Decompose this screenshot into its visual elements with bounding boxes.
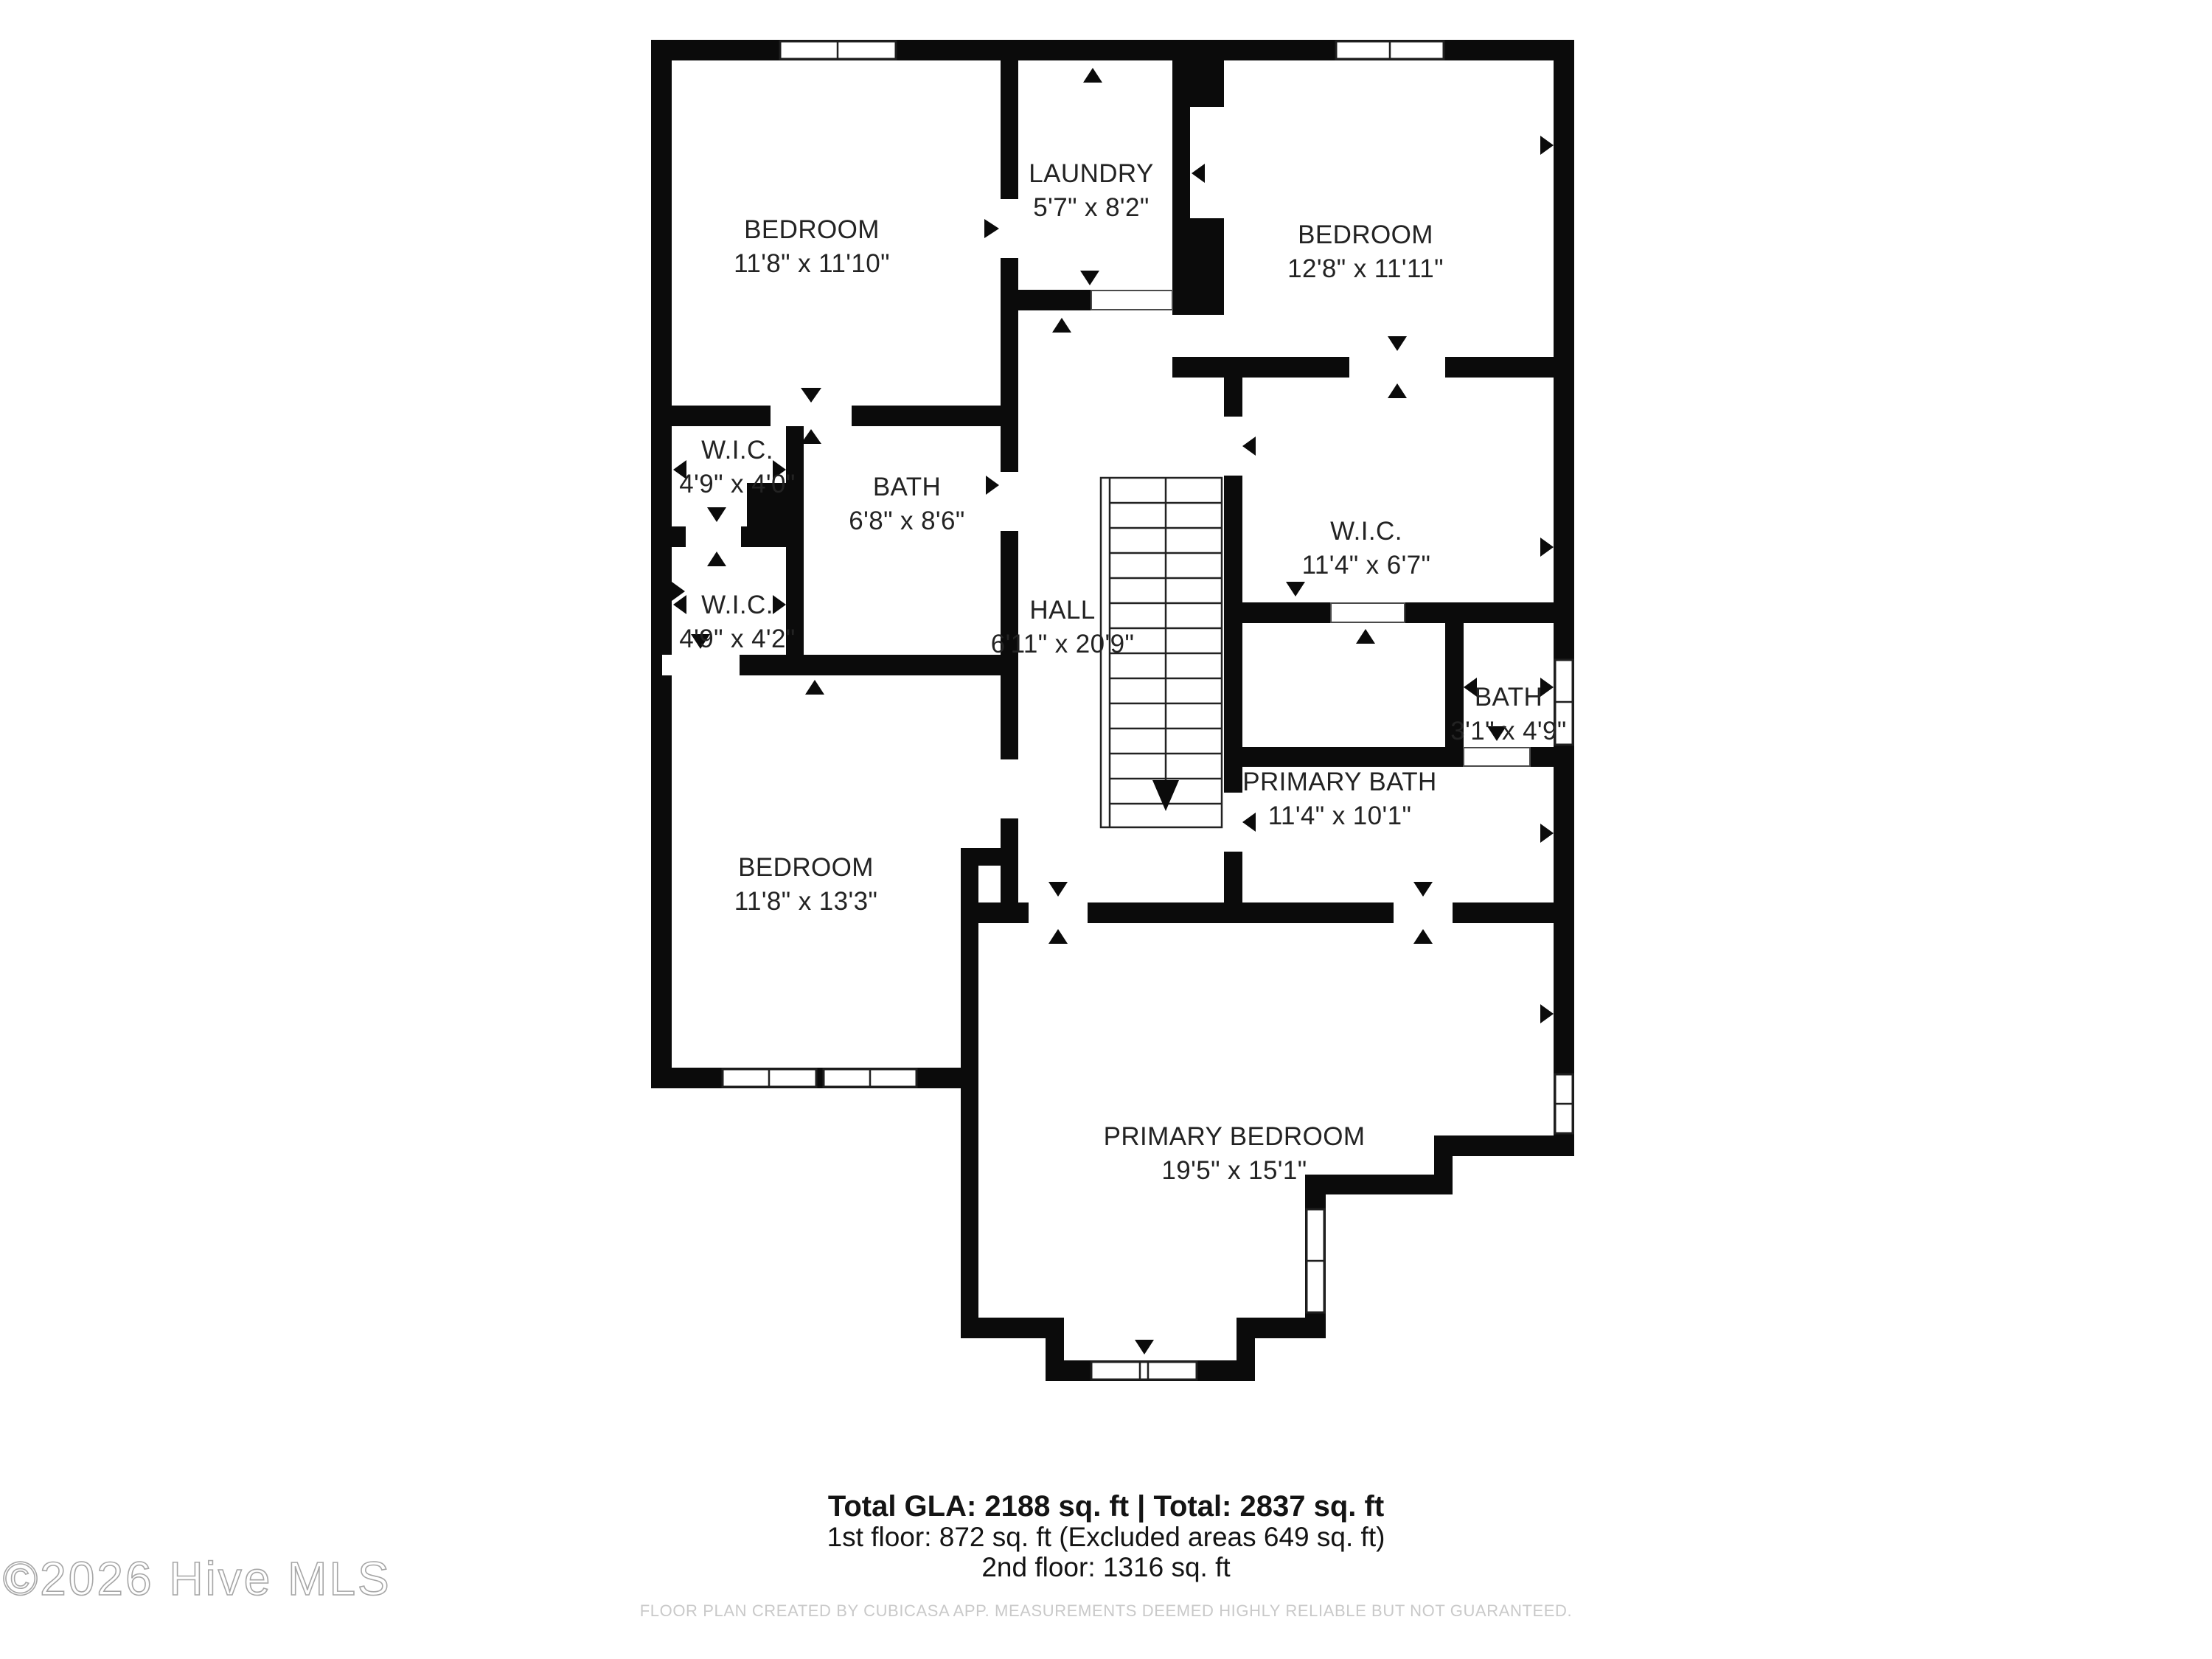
room-name: LAUNDRY	[1029, 157, 1153, 191]
room-name: PRIMARY BATH	[1242, 765, 1436, 799]
room-label-bedroom-top-left: BEDROOM 11'8" x 11'10"	[734, 213, 890, 281]
room-name: PRIMARY BEDROOM	[1104, 1120, 1366, 1154]
room-dims: 11'4" x 6'7"	[1302, 549, 1431, 582]
room-label-wic-lower-left: W.I.C. 4'9" x 4'2"	[679, 588, 795, 656]
room-name: BEDROOM	[734, 213, 890, 247]
room-name: BATH	[1450, 681, 1566, 714]
room-name: W.I.C.	[679, 588, 795, 622]
floor-plan: BEDROOM 11'8" x 11'10" LAUNDRY 5'7" x 8'…	[0, 0, 2212, 1659]
room-label-primary-bedroom: PRIMARY BEDROOM 19'5" x 15'1"	[1104, 1120, 1366, 1188]
room-dims: 4'9" x 4'0"	[679, 467, 795, 501]
room-dims: 19'5" x 15'1"	[1104, 1154, 1366, 1188]
total-gla-line: Total GLA: 2188 sq. ft | Total: 2837 sq.…	[0, 1491, 2212, 1522]
room-label-laundry: LAUNDRY 5'7" x 8'2"	[1029, 157, 1153, 225]
room-name: HALL	[991, 594, 1135, 627]
room-name: BEDROOM	[1287, 218, 1444, 252]
room-label-bedroom-top-right: BEDROOM 12'8" x 11'11"	[1287, 218, 1444, 286]
room-label-bath: BATH 6'8" x 8'6"	[849, 470, 964, 538]
room-dims: 12'8" x 11'11"	[1287, 252, 1444, 286]
room-label-bedroom-bottom-left: BEDROOM 11'8" x 13'3"	[734, 851, 878, 919]
room-dims: 11'8" x 13'3"	[734, 885, 878, 919]
mls-watermark: ©2026 Hive MLS	[3, 1551, 392, 1606]
floor-plan-canvas	[0, 0, 2212, 1659]
room-label-wic-upper-left: W.I.C. 4'9" x 4'0"	[679, 434, 795, 501]
room-label-hall: HALL 6'11" x 20'9"	[991, 594, 1135, 661]
room-label-primary-bath: PRIMARY BATH 11'4" x 10'1"	[1242, 765, 1436, 833]
room-label-wic-right: W.I.C. 11'4" x 6'7"	[1302, 515, 1431, 582]
room-dims: 6'8" x 8'6"	[849, 504, 964, 538]
room-label-bath-small: BATH 3'1" x 4'9"	[1450, 681, 1566, 748]
first-floor-line: 1st floor: 872 sq. ft (Excluded areas 64…	[0, 1522, 2212, 1552]
room-name: W.I.C.	[1302, 515, 1431, 549]
room-dims: 5'7" x 8'2"	[1029, 191, 1153, 225]
room-dims: 11'8" x 11'10"	[734, 247, 890, 281]
room-dims: 6'11" x 20'9"	[991, 627, 1135, 661]
room-dims: 3'1" x 4'9"	[1450, 714, 1566, 748]
room-dims: 4'9" x 4'2"	[679, 622, 795, 656]
room-dims: 11'4" x 10'1"	[1242, 799, 1436, 833]
room-name: BEDROOM	[734, 851, 878, 885]
room-name: BATH	[849, 470, 964, 504]
room-name: W.I.C.	[679, 434, 795, 467]
